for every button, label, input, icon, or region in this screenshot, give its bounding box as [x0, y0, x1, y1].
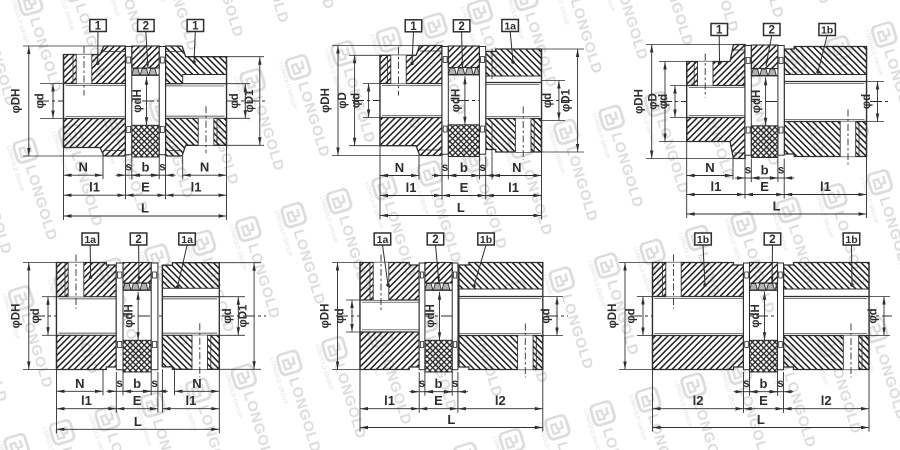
svg-text:l1: l1: [81, 393, 92, 408]
svg-text:φDH: φDH: [634, 89, 646, 114]
svg-text:1b: 1b: [845, 234, 857, 246]
svg-text:b: b: [460, 160, 468, 175]
svg-text:N: N: [192, 376, 201, 391]
svg-text:2: 2: [769, 234, 775, 246]
svg-text:φdH: φdH: [425, 304, 437, 328]
svg-text:φd: φd: [351, 93, 363, 108]
svg-text:b: b: [142, 160, 150, 175]
svg-text:s: s: [151, 378, 157, 390]
svg-text:N: N: [79, 160, 88, 175]
svg-text:1: 1: [95, 21, 102, 33]
svg-text:s: s: [116, 378, 122, 390]
svg-text:1a: 1a: [377, 234, 389, 246]
svg-text:b: b: [760, 376, 768, 391]
svg-text:1b: 1b: [697, 234, 709, 246]
svg-text:φd: φd: [861, 94, 873, 109]
svg-text:1b: 1b: [480, 234, 492, 246]
svg-text:l2: l2: [693, 393, 704, 408]
svg-text:φDH: φDH: [607, 304, 619, 329]
svg-text:b: b: [133, 376, 141, 391]
svg-text:s: s: [419, 378, 425, 390]
svg-text:φdH: φdH: [750, 304, 762, 328]
svg-text:l1: l1: [89, 180, 100, 195]
svg-text:1: 1: [410, 21, 417, 33]
svg-text:N: N: [705, 160, 714, 175]
svg-text:2: 2: [458, 21, 464, 33]
svg-text:L: L: [757, 412, 765, 427]
svg-text:s: s: [479, 162, 485, 174]
svg-text:N: N: [200, 160, 209, 175]
svg-text:s: s: [125, 162, 131, 174]
svg-text:l1: l1: [820, 179, 831, 194]
svg-text:φD: φD: [337, 92, 349, 109]
svg-text:1a: 1a: [181, 234, 193, 246]
svg-text:N: N: [395, 160, 404, 175]
svg-text:φdH: φdH: [450, 89, 462, 113]
svg-text:φd: φd: [335, 308, 347, 323]
svg-text:s: s: [745, 165, 751, 177]
svg-text:l1: l1: [508, 180, 519, 195]
svg-text:E: E: [460, 180, 469, 195]
svg-text:E: E: [141, 180, 150, 195]
svg-text:L: L: [134, 414, 142, 429]
svg-text:2: 2: [768, 25, 774, 37]
svg-text:φd: φd: [222, 308, 234, 323]
svg-text:φDH: φDH: [11, 304, 23, 329]
svg-text:l1: l1: [384, 393, 395, 408]
svg-text:l1: l1: [191, 180, 202, 195]
svg-text:l2: l2: [821, 393, 832, 408]
svg-text:φD1: φD1: [244, 89, 256, 113]
svg-text:φD1: φD1: [561, 88, 573, 112]
svg-text:L: L: [447, 412, 455, 427]
svg-text:φd: φd: [30, 308, 42, 323]
svg-text:φDH: φDH: [320, 88, 332, 113]
svg-text:b: b: [435, 376, 443, 391]
svg-text:φdH: φdH: [132, 89, 144, 113]
svg-text:φd: φd: [229, 93, 241, 108]
svg-text:φd: φd: [542, 93, 554, 108]
svg-text:E: E: [759, 393, 768, 408]
svg-text:φdH: φdH: [751, 90, 763, 114]
svg-text:L: L: [457, 200, 465, 215]
svg-text:b: b: [761, 163, 769, 178]
svg-text:φd: φd: [868, 308, 880, 323]
svg-text:1: 1: [716, 25, 723, 37]
svg-text:s: s: [159, 162, 165, 174]
svg-text:φd: φd: [626, 308, 638, 323]
svg-text:φd: φd: [658, 94, 670, 109]
svg-text:1: 1: [192, 21, 199, 33]
svg-text:2: 2: [143, 21, 149, 33]
svg-text:φDH: φDH: [11, 89, 23, 114]
svg-text:1a: 1a: [84, 234, 96, 246]
svg-text:l2: l2: [495, 393, 506, 408]
svg-text:l1: l1: [406, 180, 417, 195]
svg-text:E: E: [760, 179, 769, 194]
svg-text:L: L: [773, 199, 781, 214]
svg-text:φD1: φD1: [238, 304, 250, 328]
svg-text:2: 2: [432, 234, 438, 246]
svg-text:φDH: φDH: [320, 304, 332, 329]
svg-text:E: E: [434, 393, 443, 408]
svg-text:s: s: [452, 378, 458, 390]
svg-text:φdH: φdH: [124, 304, 136, 328]
svg-text:l1: l1: [710, 179, 721, 194]
svg-text:1b: 1b: [821, 25, 833, 37]
svg-text:s: s: [743, 378, 749, 390]
svg-text:s: s: [778, 165, 784, 177]
svg-text:φd: φd: [541, 308, 553, 323]
svg-text:N: N: [75, 376, 84, 391]
svg-text:s: s: [442, 162, 448, 174]
svg-text:1a: 1a: [504, 21, 516, 33]
svg-text:φd: φd: [35, 93, 47, 108]
svg-text:N: N: [512, 160, 521, 175]
svg-text:s: s: [777, 378, 783, 390]
svg-text:l1: l1: [185, 393, 196, 408]
svg-text:E: E: [133, 393, 142, 408]
svg-text:L: L: [141, 201, 149, 216]
svg-text:2: 2: [135, 234, 141, 246]
